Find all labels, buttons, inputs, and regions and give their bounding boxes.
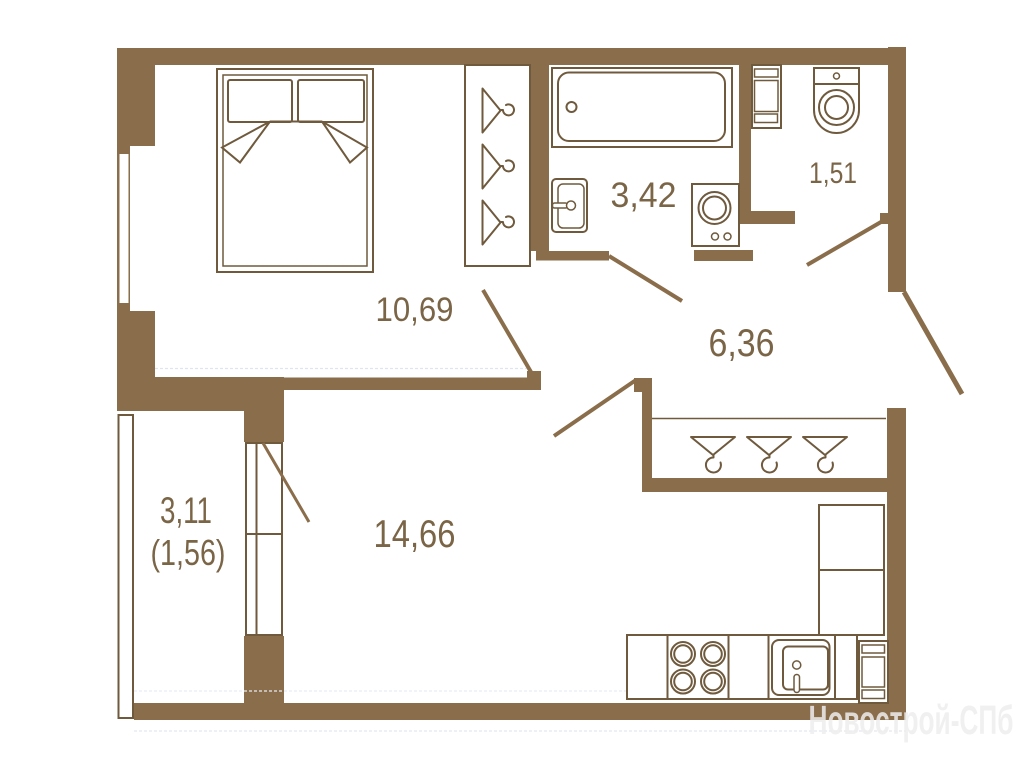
svg-text:1,51: 1,51 bbox=[809, 157, 857, 190]
svg-text:6,36: 6,36 bbox=[709, 322, 775, 365]
svg-text:3,42: 3,42 bbox=[611, 176, 677, 215]
svg-text:3,11: 3,11 bbox=[160, 490, 212, 531]
svg-text:Новострой-СПб: Новострой-СПб bbox=[809, 697, 1014, 743]
svg-text:10,69: 10,69 bbox=[376, 291, 454, 329]
svg-text:14,66: 14,66 bbox=[374, 513, 456, 556]
svg-text:(1,56): (1,56) bbox=[151, 532, 226, 573]
